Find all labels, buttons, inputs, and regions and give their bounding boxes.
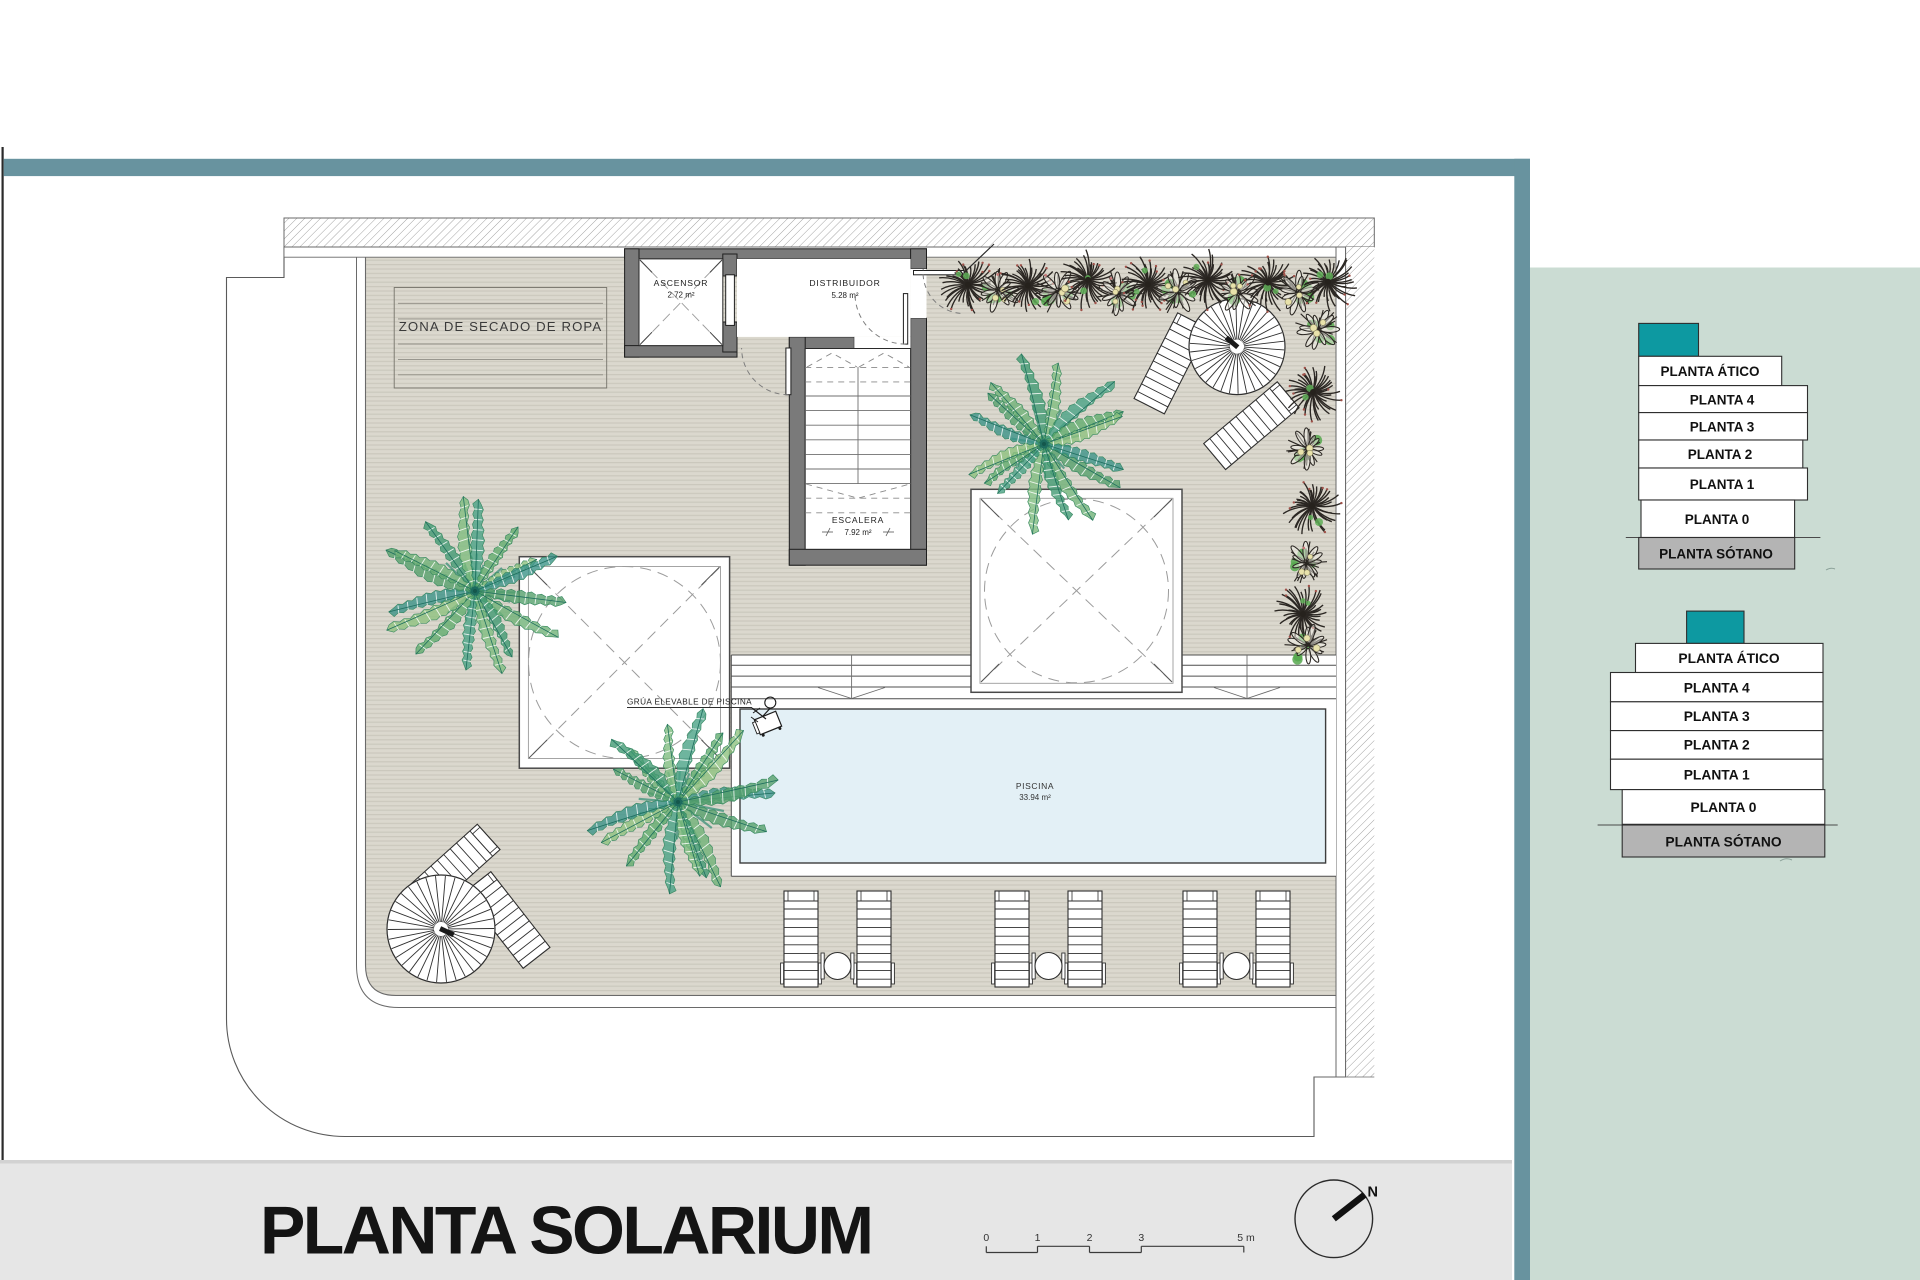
svg-text:PLANTA 4: PLANTA 4 [1690,393,1755,408]
svg-text:PLANTA ÁTICO: PLANTA ÁTICO [1661,364,1760,379]
svg-text:N: N [1368,1185,1378,1201]
svg-text:PLANTA SOLARIUM: PLANTA SOLARIUM [260,1193,871,1269]
svg-text:2.72 m²: 2.72 m² [667,291,694,300]
svg-text:0: 0 [983,1232,989,1244]
svg-text:PISCINA: PISCINA [1016,781,1054,791]
svg-text:PLANTA 0: PLANTA 0 [1691,800,1757,815]
svg-text:ASCENSOR: ASCENSOR [654,278,709,288]
svg-text:PLANTA 4: PLANTA 4 [1684,681,1750,696]
svg-text:PLANTA ÁTICO: PLANTA ÁTICO [1678,650,1779,666]
svg-text:5 m: 5 m [1237,1232,1255,1244]
svg-text:PLANTA 0: PLANTA 0 [1685,512,1750,527]
svg-text:PLANTA 3: PLANTA 3 [1690,420,1755,435]
svg-text:PLANTA 1: PLANTA 1 [1690,477,1755,492]
svg-text:33.94 m²: 33.94 m² [1019,793,1051,802]
svg-text:GRÚA ELEVABLE DE PISCINA: GRÚA ELEVABLE DE PISCINA [627,697,752,707]
svg-text:5.28 m²: 5.28 m² [831,291,858,300]
svg-text:PLANTA SÓTANO: PLANTA SÓTANO [1665,833,1782,850]
svg-text:PLANTA 2: PLANTA 2 [1684,738,1750,753]
svg-text:DISTRIBUIDOR: DISTRIBUIDOR [809,278,880,288]
svg-text:PLANTA SÓTANO: PLANTA SÓTANO [1659,547,1773,562]
svg-text:3: 3 [1138,1232,1144,1244]
svg-text:2: 2 [1087,1232,1093,1244]
svg-text:ESCALERA: ESCALERA [832,515,884,525]
svg-text:PLANTA 1: PLANTA 1 [1684,768,1750,783]
svg-text:PLANTA 3: PLANTA 3 [1684,709,1750,724]
svg-text:ZONA DE SECADO DE ROPA: ZONA DE SECADO DE ROPA [399,319,603,334]
svg-text:7.92 m²: 7.92 m² [844,528,871,537]
svg-text:1: 1 [1035,1232,1041,1244]
svg-text:PLANTA 2: PLANTA 2 [1688,447,1753,462]
